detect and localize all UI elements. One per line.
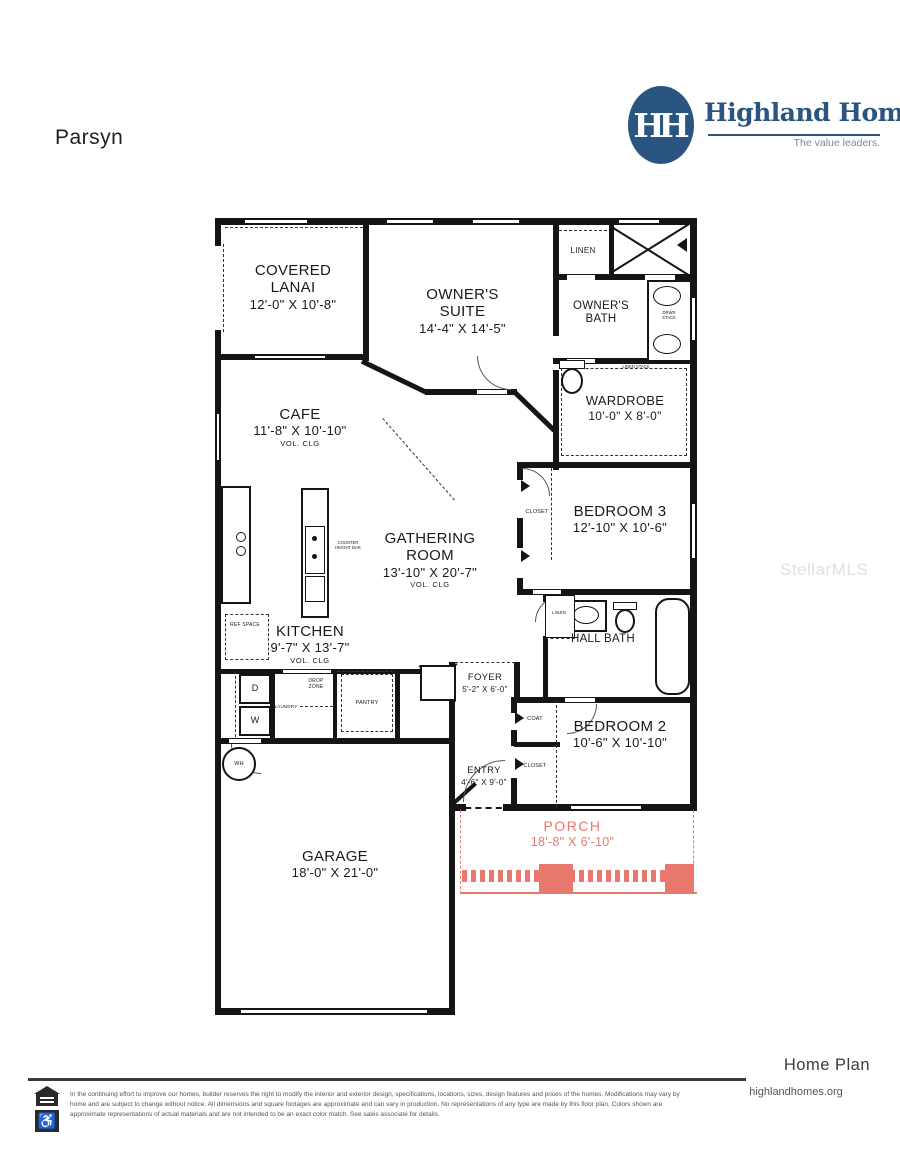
room-dimensions: 10'-0" X 8'-0" [565, 410, 685, 424]
dashed-line [300, 706, 333, 707]
label-linen-stack: LINEN STACK [613, 364, 659, 369]
dashed-line [225, 227, 363, 228]
room-name: HALL BATH [567, 633, 639, 646]
room-name: ENTRY [453, 766, 515, 777]
toilet [561, 368, 583, 394]
room-dimensions: 14'-4" X 14'-5" [405, 322, 520, 337]
room-dimensions: 18'-8" X 6'-10" [490, 835, 655, 849]
room-label-porch: PORCH 18'-8" X 6'-10" [490, 818, 655, 849]
room-label-owners-suite: OWNER'S SUITE 14'-4" X 14'-5" [405, 286, 520, 336]
room-note: VOL. CLG [250, 657, 370, 666]
oven [305, 576, 325, 602]
storage-closet [420, 665, 456, 701]
window [387, 218, 433, 225]
wall-segment [215, 741, 221, 1015]
room-label-bedroom3: BEDROOM 3 12'-10" X 10'-6" [550, 503, 690, 536]
doorway-opening [229, 739, 261, 743]
page-title: Parsyn [55, 126, 123, 150]
label-coat: COAT [515, 716, 555, 723]
room-name: KITCHEN [250, 623, 370, 640]
window [215, 414, 221, 460]
equal-housing-body [36, 1094, 58, 1106]
room-label-covered-lanai: COVERED LANAI 12'-0" X 10'-8" [237, 262, 349, 312]
logo-tagline: The value leaders. [708, 134, 880, 149]
dashed-line [556, 700, 557, 808]
room-label-bedroom2: BEDROOM 2 10'-6" X 10'-10" [550, 718, 690, 751]
room-dimensions: 9'-7" X 13'-7" [250, 641, 370, 656]
wall-segment [517, 462, 697, 468]
highland-homes-logo: HH Highland Homes The value leaders. [628, 84, 884, 168]
room-dimensions: 4'-6" X 9'-0" [453, 778, 515, 787]
room-label-entry: ENTRY 4'-6" X 9'-0" [453, 766, 515, 787]
equal-housing-icon [33, 1086, 61, 1106]
equal-housing-equals [40, 1097, 54, 1099]
wall-segment [215, 218, 221, 246]
label-washer: W [239, 715, 271, 725]
footer-website: highlandhomes.org [716, 1086, 876, 1098]
window [255, 354, 325, 360]
bath-sink [653, 286, 681, 306]
doorway-opening [533, 590, 561, 594]
label-drop-zone: DROP ZONE [301, 678, 331, 690]
doorway-opening [283, 670, 331, 673]
room-label-linen: LINEN [557, 246, 609, 255]
room-label-foyer: FOYER 5'-2" X 6'-0" [455, 673, 515, 694]
room-name: WARDROBE [565, 394, 685, 409]
room-note: VOL. CLG [240, 440, 360, 449]
room-dimensions: 13'-10" X 20'-7" [365, 566, 495, 581]
dashed-diagonal [382, 418, 455, 501]
doorway-opening [567, 275, 595, 280]
room-label-garage: GARAGE 18'-0" X 21'-0" [250, 848, 420, 881]
kitchen-counter [221, 486, 251, 604]
label-closet-bedroom3: CLOSET [520, 509, 554, 516]
door-swing-marker [677, 238, 687, 252]
room-label-owners-bath: OWNER'S BATH [560, 300, 642, 326]
porch-column [539, 864, 573, 894]
floor-plan: COVERED LANAI 12'-0" X 10'-8" OWNER'S SU… [215, 218, 697, 1018]
wall-segment [363, 218, 369, 361]
dashed-line [337, 671, 393, 672]
wall-segment [333, 669, 337, 739]
room-name: CAFE [240, 406, 360, 423]
equal-housing-roof [34, 1086, 60, 1094]
wall-segment [543, 636, 548, 697]
doorway-opening [477, 390, 507, 394]
window [690, 504, 697, 558]
room-name: BEDROOM 2 [550, 718, 690, 735]
dashed-line [559, 230, 607, 231]
wall-segment [609, 225, 614, 276]
wall-segment [511, 697, 697, 703]
room-name: OWNER'S SUITE [405, 286, 520, 321]
toilet [615, 609, 635, 633]
diagonal-wall [512, 389, 556, 432]
bath-sink [653, 334, 681, 354]
logo-monogram: HH [633, 106, 688, 145]
wall-segment [511, 697, 517, 713]
logo-name: Highland Homes [704, 98, 900, 127]
room-dimensions: 12'-0" X 10'-8" [237, 298, 349, 313]
hall-bath-sink [573, 606, 599, 624]
porch-edge-line [460, 892, 697, 894]
room-name: OWNER'S BATH [560, 300, 642, 326]
logo-oval-icon: HH [628, 86, 694, 164]
cooktop [305, 526, 325, 574]
room-dimensions: 11'-8" X 10'-10" [240, 424, 360, 439]
door-arc [477, 356, 511, 390]
room-label-hall-bath: HALL BATH [567, 633, 639, 646]
room-name: LINEN [557, 246, 609, 255]
window [619, 218, 659, 225]
label-ref-space: REF SPACE [230, 622, 260, 628]
room-label-gathering-room: GATHERING ROOM 13'-10" X 20'-7" VOL. CLG [365, 530, 495, 590]
footer-plan-type: Home Plan [700, 1056, 870, 1075]
burner-dot [312, 536, 317, 541]
label-water-heater: WH [222, 761, 256, 768]
room-name: GATHERING ROOM [365, 530, 495, 565]
floor-plan-page: Parsyn HH Highland Homes The value leade… [0, 0, 900, 1164]
wall-segment [395, 669, 400, 739]
room-name: COVERED LANAI [237, 262, 349, 297]
label-laundry: LAUNDRY [272, 704, 300, 709]
label-drwr-stack: DRWR STACK [656, 310, 682, 321]
room-dimensions: 10'-6" X 10'-10" [550, 736, 690, 751]
room-label-kitchen: KITCHEN 9'-7" X 13'-7" VOL. CLG [250, 623, 370, 666]
diagonal-wall [361, 359, 427, 394]
room-label-wardrobe: WARDROBE 10'-0" X 8'-0" [565, 394, 685, 424]
room-name: BEDROOM 3 [550, 503, 690, 520]
kitchen-sink [236, 546, 246, 556]
room-name: GARAGE [250, 848, 420, 865]
label-closet-bedroom2: CLOSET [515, 763, 555, 770]
door-swing-marker [521, 480, 530, 492]
wall-segment [517, 518, 523, 548]
room-name: FOYER [455, 673, 515, 684]
burner-dot [312, 554, 317, 559]
room-dimensions: 12'-10" X 10'-6" [550, 521, 690, 536]
dashed-line [235, 671, 236, 737]
room-dimensions: 5'-2" X 6'-0" [455, 685, 515, 694]
dashed-line [223, 244, 224, 332]
dashed-line [455, 662, 515, 663]
accessibility-icon: ♿ [35, 1110, 59, 1132]
label-dryer: D [239, 683, 271, 693]
label-linen-hall: LINEN [546, 610, 572, 615]
window [241, 1008, 427, 1015]
window [245, 218, 307, 225]
dashed-line [455, 807, 512, 809]
room-dimensions: 18'-0" X 21'-0" [250, 866, 420, 881]
doorway-opening [565, 698, 595, 702]
room-note: VOL. CLG [365, 581, 495, 590]
porch-column [665, 864, 694, 894]
kitchen-sink [236, 532, 246, 542]
room-label-cafe: CAFE 11'-8" X 10'-10" VOL. CLG [240, 406, 360, 449]
watermark: StellarMLS [780, 560, 868, 580]
footer-divider [28, 1078, 746, 1081]
window [473, 218, 519, 225]
footer-disclaimer: In the continuing effort to improve our … [70, 1090, 695, 1120]
label-pantry: PANTRY [342, 700, 392, 707]
room-name: PORCH [490, 818, 655, 834]
bathtub [655, 598, 690, 695]
linen-closet [545, 595, 575, 638]
wall-segment [553, 370, 559, 470]
porch-hatch [462, 870, 692, 882]
door-swing-marker [521, 550, 530, 562]
label-counter-height-bar: COUNTER HEIGHT BAR [333, 540, 363, 551]
